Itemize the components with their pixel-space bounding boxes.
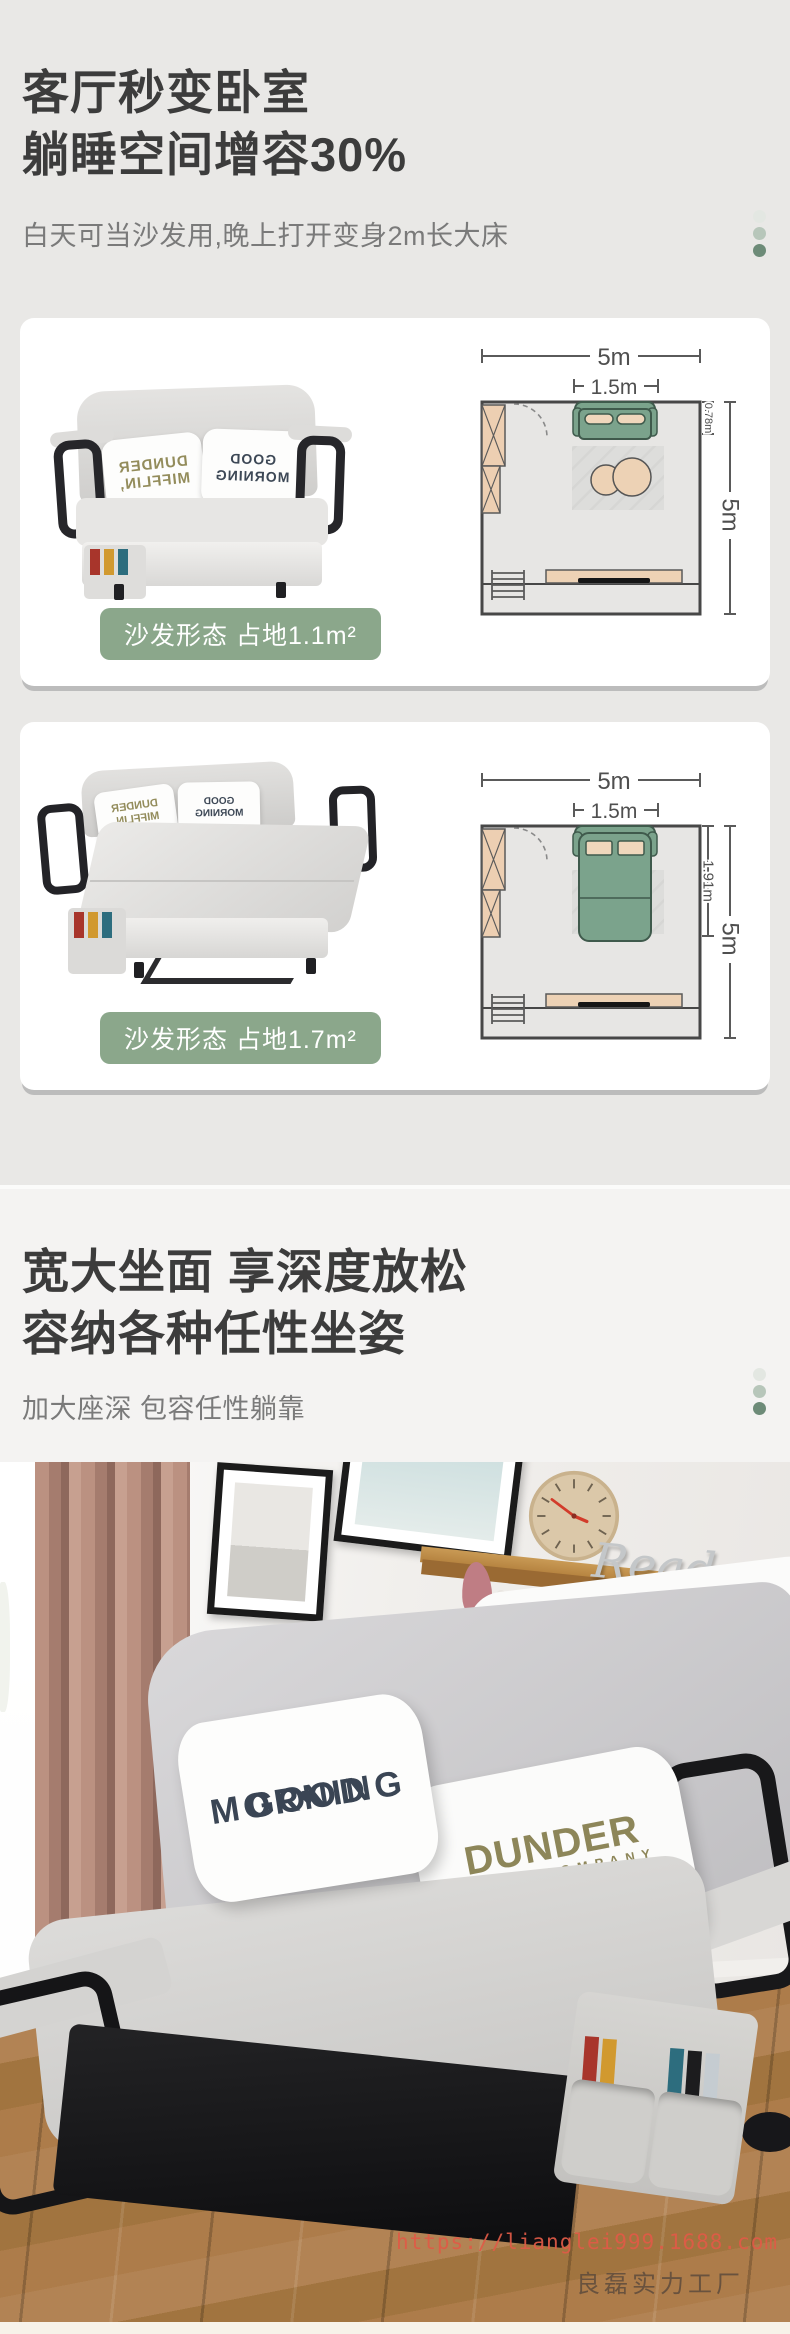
hero-title: 客厅秒变卧室 躺睡空间增容30% <box>22 62 407 186</box>
magazine <box>118 549 128 575</box>
sofa-seat <box>76 498 328 546</box>
dim-room-width: 5m <box>597 344 630 371</box>
picture-frame <box>207 1462 333 1622</box>
next-section-edge <box>0 2322 790 2334</box>
dim-sofa-depth: 0.78m <box>702 403 714 434</box>
area-badge: 沙发形态 占地1.7m² <box>100 1012 381 1064</box>
product-detail-page: 客厅秒变卧室 躺睡空间增容30% 白天可当沙发用,晚上打开变身2m长大床 DUN… <box>0 0 790 2334</box>
mattress-seam <box>90 880 354 882</box>
floor-plan-bed: 5m 1.5m <box>468 758 778 1068</box>
coffee-table <box>613 458 651 496</box>
dim-room-depth: 5m <box>717 498 744 531</box>
card-sofa-form: DUNDERMIFFLIN, GOODMORNING <box>20 318 770 686</box>
seating-title-line1: 宽大坐面 享深度放松 <box>22 1241 468 1303</box>
folding-leg-frame <box>140 958 305 984</box>
dot-icon <box>753 1368 766 1381</box>
magazine <box>88 912 98 938</box>
dim-sofa-width: 1.5m <box>591 376 638 399</box>
seating-title: 宽大坐面 享深度放松 容纳各种任性坐姿 <box>22 1241 468 1365</box>
dot-icon <box>753 1402 766 1415</box>
side-storage-pockets <box>553 1990 760 2205</box>
card-bed-form: DUNDERMIFFLIN, GOODMORNING <box>20 722 770 1090</box>
sofa-leg <box>134 962 144 978</box>
magazine <box>102 912 112 938</box>
bed-illustration: DUNDERMIFFLIN, GOODMORNING <box>38 766 408 1031</box>
floor-lamp-base <box>742 2112 790 2152</box>
dot-icon <box>753 244 766 257</box>
hero-title-line2: 躺睡空间增容30% <box>22 124 407 186</box>
magazine <box>90 549 100 575</box>
tv <box>578 1002 650 1007</box>
watermark-brand: 良磊实力工厂 <box>576 2264 744 2299</box>
sofa-leg <box>114 584 124 600</box>
seating-subtitle: 加大座深 包容任性躺靠 <box>22 1387 305 1426</box>
tv <box>578 578 650 583</box>
plan-sofa <box>573 402 657 439</box>
dot-icon <box>753 1385 766 1398</box>
area-badge: 沙发形态 占地1.1m² <box>100 608 381 660</box>
hero-subtitle: 白天可当沙发用,晚上打开变身2m长大床 <box>22 214 509 253</box>
storage-pocket <box>68 908 126 974</box>
armrest-frame <box>36 802 90 896</box>
sofa-illustration: DUNDERMIFFLIN, GOODMORNING <box>50 384 360 619</box>
dim-bed-depth: 1.91m <box>700 860 717 902</box>
frame-art <box>227 1482 313 1601</box>
magazine <box>74 912 84 938</box>
pillow-good-morning: ♥ GOOD MORNING <box>172 1689 443 1907</box>
sofa-leg <box>306 958 316 974</box>
dot-icon <box>753 210 766 223</box>
lifestyle-photo: Read DUNDER MIFFLIN, INC PAPER COMPANY ♥… <box>0 1462 790 2334</box>
watermark-url: https://lianglei999.1688.com <box>396 2230 778 2254</box>
decor-dots <box>753 210 766 257</box>
pillow-good-mini: GOODMORNING <box>201 428 304 507</box>
dim-room-depth: 5m <box>717 922 744 955</box>
dim-bed-width: 1.5m <box>591 800 638 823</box>
dim-room-width: 5m <box>597 768 630 795</box>
sofa-leg <box>276 582 286 598</box>
hero-title-line1: 客厅秒变卧室 <box>22 62 407 124</box>
magazine <box>104 549 114 575</box>
storage-pouch <box>647 2090 744 2197</box>
frame-art <box>355 1462 504 1541</box>
decor-dots <box>753 1368 766 1415</box>
dot-icon <box>753 227 766 240</box>
storage-pouch <box>560 2078 657 2185</box>
seating-title-line2: 容纳各种任性坐姿 <box>22 1303 468 1365</box>
floor-plan-sofa: 5m 1.5m <box>468 334 778 644</box>
plan-bed <box>573 826 657 941</box>
